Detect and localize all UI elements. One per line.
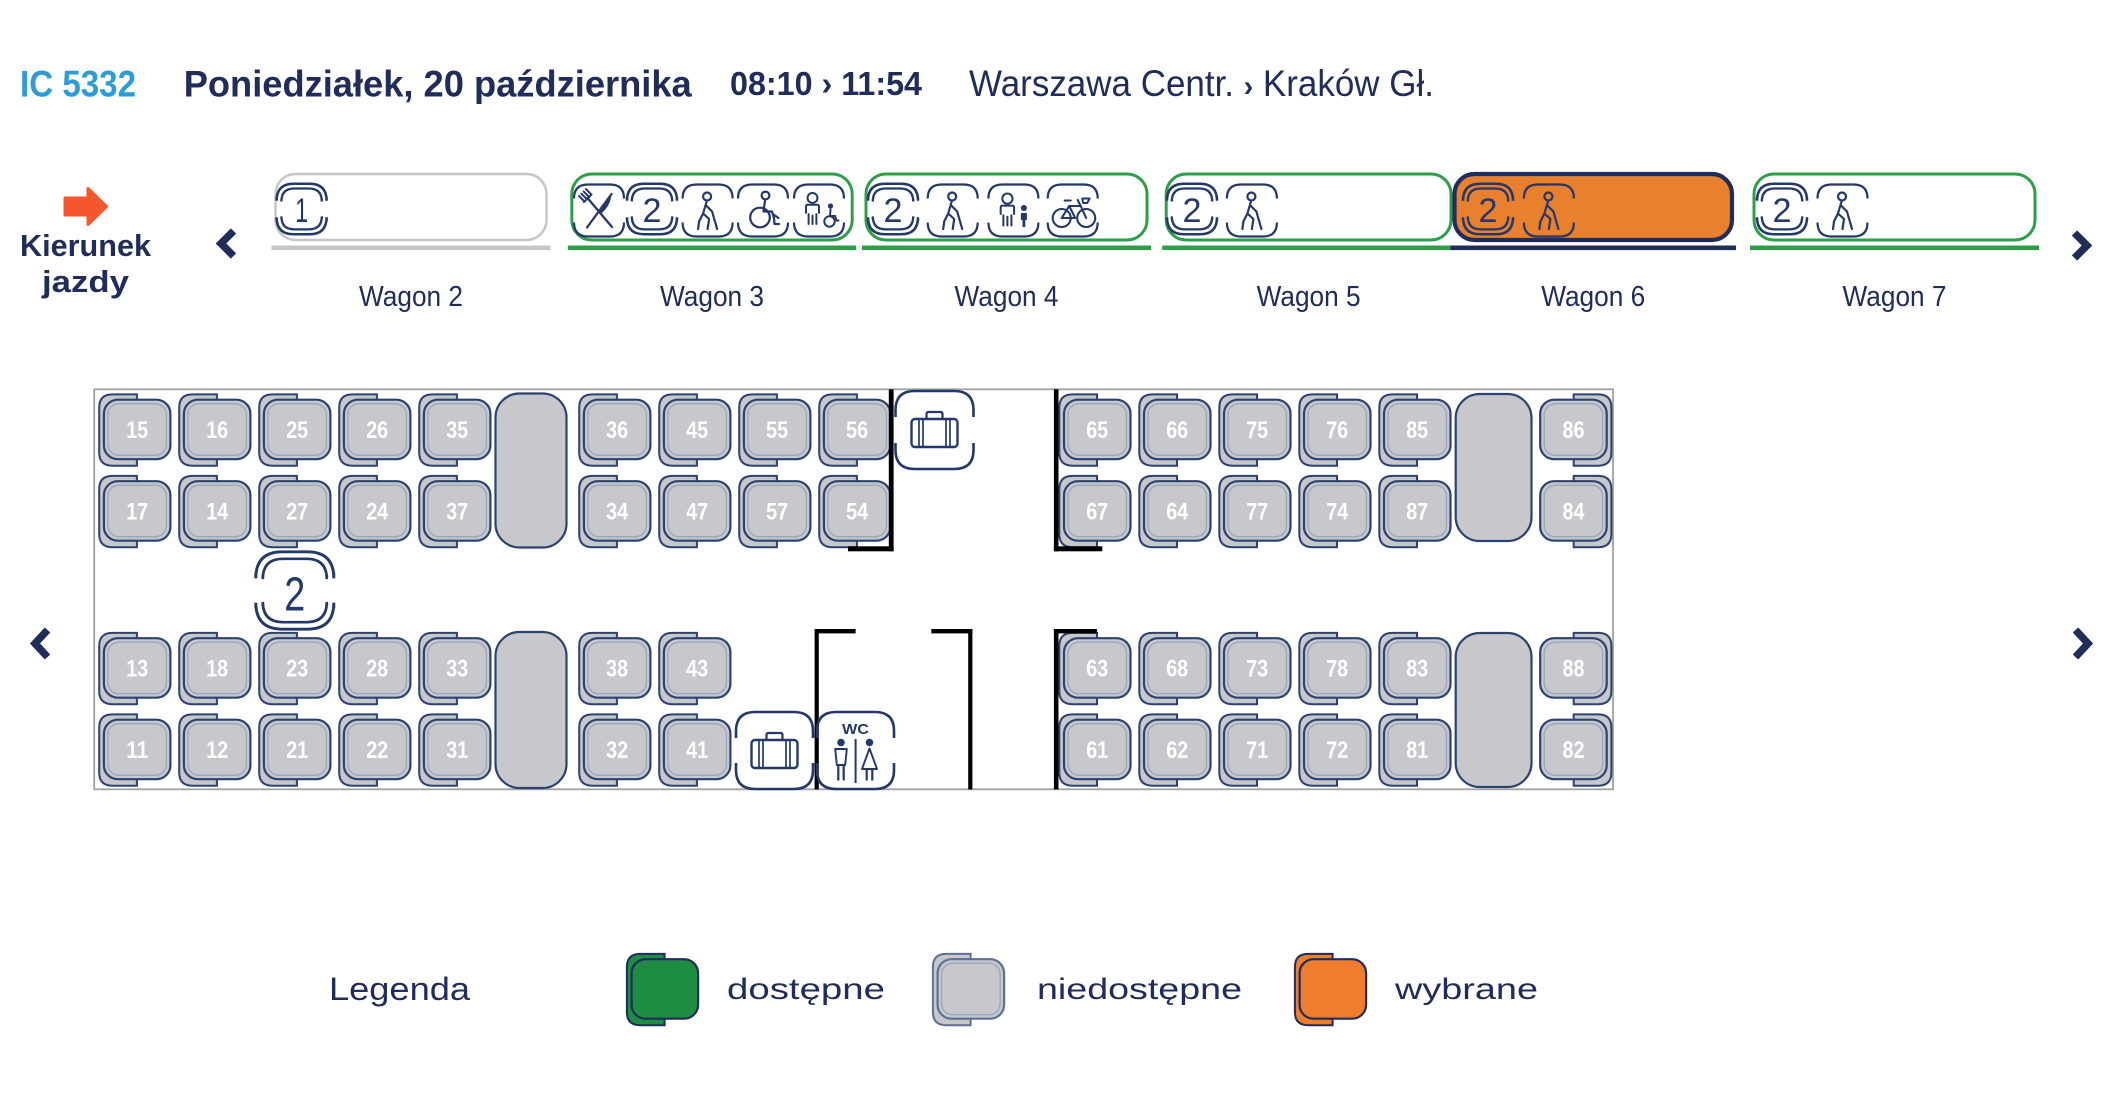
svg-text:Wagon 2: Wagon 2 — [359, 281, 463, 313]
svg-text:Legenda: Legenda — [329, 971, 470, 1007]
svg-text:niedostępne: niedostępne — [1037, 973, 1242, 1006]
svg-text:wybrane: wybrane — [1394, 973, 1538, 1006]
svg-text:1: 1 — [295, 192, 308, 230]
svg-text:55: 55 — [766, 417, 788, 444]
svg-text:43: 43 — [686, 656, 708, 683]
svg-text:jazdy: jazdy — [41, 264, 130, 299]
svg-text:34: 34 — [606, 499, 629, 526]
svg-text:15: 15 — [126, 417, 148, 444]
svg-text:73: 73 — [1246, 656, 1268, 683]
svg-text:47: 47 — [686, 499, 708, 526]
svg-text:33: 33 — [446, 656, 468, 683]
svg-text:87: 87 — [1406, 499, 1428, 526]
svg-text:67: 67 — [1086, 499, 1108, 526]
svg-text:23: 23 — [286, 656, 308, 683]
svg-text:57: 57 — [766, 499, 788, 526]
svg-text:72: 72 — [1326, 737, 1348, 764]
svg-text:2: 2 — [643, 192, 662, 230]
svg-text:2: 2 — [284, 569, 305, 622]
svg-text:14: 14 — [206, 499, 229, 526]
svg-text:12: 12 — [206, 737, 228, 764]
svg-text:63: 63 — [1086, 656, 1108, 683]
svg-text:Poniedziałek, 20 października: Poniedziałek, 20 października — [184, 64, 692, 105]
svg-text:65: 65 — [1086, 417, 1108, 444]
svg-text:27: 27 — [286, 499, 308, 526]
svg-text:77: 77 — [1246, 499, 1268, 526]
svg-text:82: 82 — [1563, 737, 1585, 764]
svg-text:85: 85 — [1406, 417, 1428, 444]
svg-text:62: 62 — [1166, 737, 1188, 764]
svg-text:Wagon 6: Wagon 6 — [1541, 281, 1645, 313]
svg-text:81: 81 — [1406, 737, 1428, 764]
svg-text:76: 76 — [1326, 417, 1348, 444]
svg-text:78: 78 — [1326, 656, 1348, 683]
svg-text:18: 18 — [206, 656, 228, 683]
svg-text:37: 37 — [446, 499, 468, 526]
svg-text:61: 61 — [1086, 737, 1108, 764]
svg-text:56: 56 — [846, 417, 868, 444]
svg-text:28: 28 — [366, 656, 388, 683]
svg-text:64: 64 — [1166, 499, 1189, 526]
svg-text:17: 17 — [126, 499, 148, 526]
svg-text:Warszawa Centr. › Kraków Gł.: Warszawa Centr. › Kraków Gł. — [969, 63, 1434, 104]
svg-text:74: 74 — [1326, 499, 1349, 526]
svg-text:45: 45 — [686, 417, 708, 444]
svg-text:2: 2 — [1479, 192, 1498, 230]
svg-text:86: 86 — [1563, 417, 1585, 444]
svg-text:2: 2 — [884, 192, 903, 230]
svg-text:54: 54 — [846, 499, 869, 526]
svg-text:dostępne: dostępne — [727, 973, 885, 1006]
svg-text:75: 75 — [1246, 417, 1268, 444]
svg-text:38: 38 — [606, 656, 628, 683]
svg-text:68: 68 — [1166, 656, 1188, 683]
svg-text:84: 84 — [1563, 499, 1586, 526]
svg-text:IC 5332: IC 5332 — [20, 64, 136, 105]
svg-text:Kierunek: Kierunek — [20, 228, 152, 263]
svg-text:25: 25 — [286, 417, 308, 444]
svg-text:08:10 › 11:54: 08:10 › 11:54 — [730, 65, 923, 102]
svg-text:Wagon 4: Wagon 4 — [955, 281, 1059, 313]
svg-text:35: 35 — [446, 417, 468, 444]
svg-text:Wagon 3: Wagon 3 — [660, 281, 764, 313]
svg-text:88: 88 — [1563, 656, 1585, 683]
svg-text:32: 32 — [606, 737, 628, 764]
svg-text:2: 2 — [1773, 192, 1792, 230]
svg-text:13: 13 — [126, 656, 148, 683]
svg-text:Wagon 7: Wagon 7 — [1843, 281, 1947, 313]
svg-text:21: 21 — [286, 737, 308, 764]
svg-text:16: 16 — [206, 417, 228, 444]
svg-text:36: 36 — [606, 417, 628, 444]
svg-text:26: 26 — [366, 417, 388, 444]
svg-text:11: 11 — [126, 737, 148, 764]
svg-text:31: 31 — [446, 737, 468, 764]
svg-text:22: 22 — [366, 737, 388, 764]
svg-text:WC: WC — [842, 721, 869, 738]
svg-text:2: 2 — [1183, 192, 1202, 230]
svg-text:83: 83 — [1406, 656, 1428, 683]
svg-text:24: 24 — [366, 499, 389, 526]
svg-text:Wagon 5: Wagon 5 — [1257, 281, 1361, 313]
svg-text:41: 41 — [686, 737, 708, 764]
svg-text:66: 66 — [1166, 417, 1188, 444]
svg-text:71: 71 — [1246, 737, 1268, 764]
